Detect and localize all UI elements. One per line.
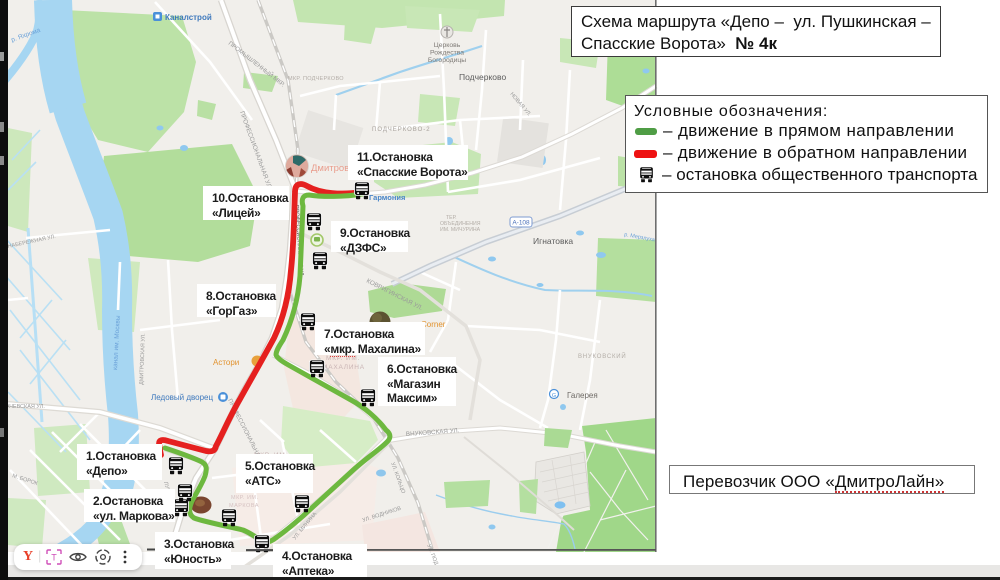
svg-text:Галерея: Галерея [567, 391, 598, 400]
svg-text:МКР. ПОДЧЕРКОВО: МКР. ПОДЧЕРКОВО [288, 76, 344, 82]
svg-text:Игнатовка: Игнатовка [533, 236, 573, 246]
svg-text:Каналстрой: Каналстрой [165, 13, 212, 22]
svg-text:Рождества: Рождества [430, 50, 464, 57]
svg-text:Богородицы: Богородицы [428, 57, 466, 64]
svg-text:Гармония: Гармония [369, 193, 405, 202]
svg-text:МАХАЛИНА: МАХАЛИНА [322, 364, 365, 371]
svg-text:Подчерково: Подчерково [459, 72, 506, 82]
svg-text:Ледовый дворец: Ледовый дворец [151, 393, 214, 402]
svg-text:МАРКОВА: МАРКОВА [229, 503, 259, 509]
svg-text:Дмитров: Дмитров [311, 163, 349, 174]
svg-text:G: G [552, 393, 556, 399]
svg-text:T: T [51, 553, 57, 563]
svg-text:МКР. ИМ.: МКР. ИМ. [231, 495, 259, 501]
svg-text:ПОДЧЕРКОВО-2: ПОДЧЕРКОВО-2 [372, 127, 431, 133]
svg-text:Церковь: Церковь [434, 42, 461, 49]
svg-text:Астори: Астори [213, 358, 239, 367]
svg-text:ИМ. МИЧУРИНА: ИМ. МИЧУРИНА [440, 227, 481, 233]
svg-text:А-108: А-108 [512, 220, 530, 227]
svg-text:ВНУКОВСКИЙ: ВНУКОВСКИЙ [578, 352, 627, 360]
svg-text:АЧЕВСКАЯ УЛ.: АЧЕВСКАЯ УЛ. [6, 404, 45, 410]
